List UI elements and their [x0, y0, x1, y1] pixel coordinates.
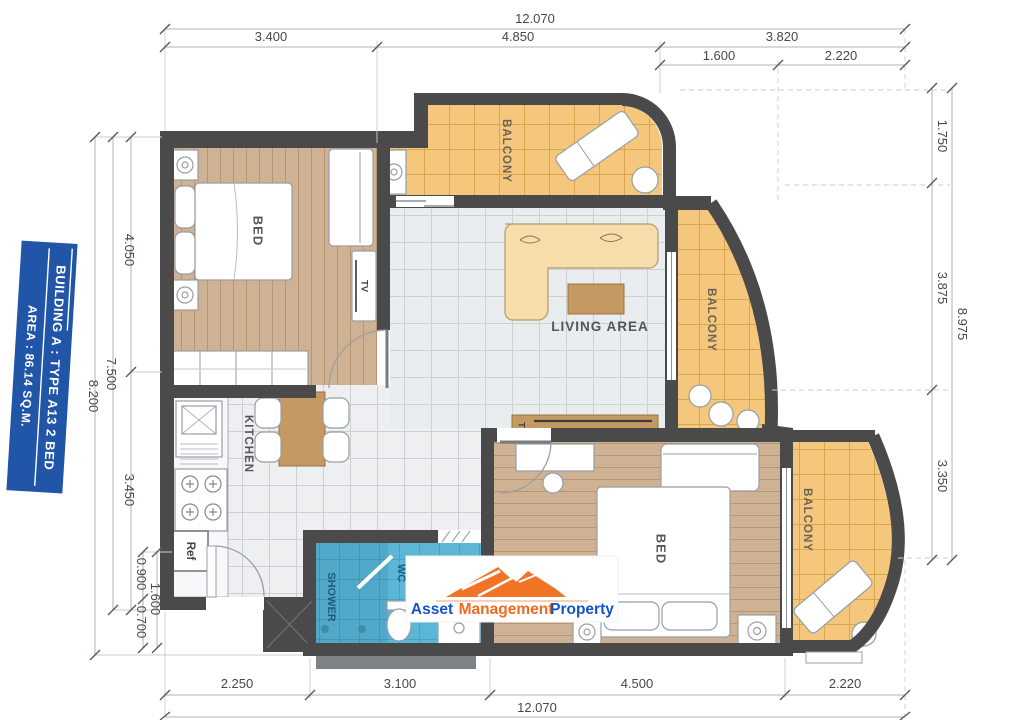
bedroom2-label: BED — [654, 534, 669, 564]
dim-top-1: 3.400 — [255, 29, 288, 44]
dining-chair — [255, 432, 281, 462]
pillow — [175, 186, 195, 228]
desk — [516, 444, 594, 471]
logo-word-management: Management — [459, 601, 554, 618]
balcony-table — [709, 402, 733, 426]
logo-word-asset: Asset — [411, 601, 453, 618]
dining-chair — [323, 398, 349, 428]
tv-bedroom-label: TV — [359, 280, 370, 293]
title-badge: BUILDING A : TYPE A13 2 BED AREA : 86.14… — [6, 241, 77, 494]
shower-label: SHOWER — [325, 572, 337, 622]
dining-chair — [255, 398, 281, 428]
floor-plan-drawing: Ref TV — [0, 0, 1024, 720]
entry-door-leaf — [207, 546, 216, 597]
coffee-table — [568, 284, 624, 314]
pillow — [175, 232, 195, 274]
balcony-chair — [689, 385, 711, 407]
pillow — [662, 602, 717, 630]
dim-top-overall: 12.070 — [515, 11, 555, 26]
dim-left-7500: 7.500 — [104, 358, 119, 391]
dim-left-3450: 3.450 — [122, 474, 137, 507]
dim-bottom-1: 2.250 — [221, 676, 254, 691]
wc-label: WC — [395, 564, 407, 582]
dim-left-overall: 8.200 — [86, 380, 101, 413]
dim-left-1600: 1.600 — [148, 583, 163, 616]
balcony1-label: BALCONY — [500, 119, 512, 183]
bed — [195, 183, 292, 280]
dim-right-1750: 1.750 — [935, 120, 950, 153]
dim-bottom-4: 2.220 — [829, 676, 862, 691]
dim-top-3: 3.820 — [766, 29, 799, 44]
side-table — [632, 167, 658, 193]
balcony2-label: BALCONY — [705, 288, 717, 352]
dim-top-4: 1.600 — [703, 48, 736, 63]
dim-right-3875: 3.875 — [935, 272, 950, 305]
dining-table — [279, 392, 325, 466]
living-area-label: LIVING AREA — [551, 319, 649, 334]
brand-logo: Asset Management Property — [406, 556, 618, 622]
dim-top-5: 2.220 — [825, 48, 858, 63]
bedroom1-label: BED — [251, 216, 266, 246]
sofa-bedroom2 — [661, 444, 759, 491]
dim-bottom-2: 3.100 — [384, 676, 417, 691]
logo-word-property: Property — [550, 601, 614, 618]
dim-bottom-3: 4.500 — [621, 676, 654, 691]
balcony3-label: BALCONY — [801, 488, 813, 552]
floor-plan-page: Ref TV — [0, 0, 1024, 720]
dim-right-overall: 8.975 — [955, 308, 970, 341]
desk-chair — [543, 473, 563, 493]
dim-top-2: 4.850 — [502, 29, 535, 44]
fridge-label: Ref — [184, 542, 196, 561]
dim-bottom-overall: 12.070 — [517, 700, 557, 715]
dim-left-0700: 0.700 — [134, 606, 149, 639]
dining-chair — [323, 432, 349, 462]
kitchen-label: KITCHEN — [242, 415, 254, 473]
dim-left-4050: 4.050 — [122, 234, 137, 267]
bench-sofa — [329, 149, 373, 246]
dim-right-3350: 3.350 — [935, 460, 950, 493]
dim-left-0900: 0.900 — [134, 558, 149, 591]
